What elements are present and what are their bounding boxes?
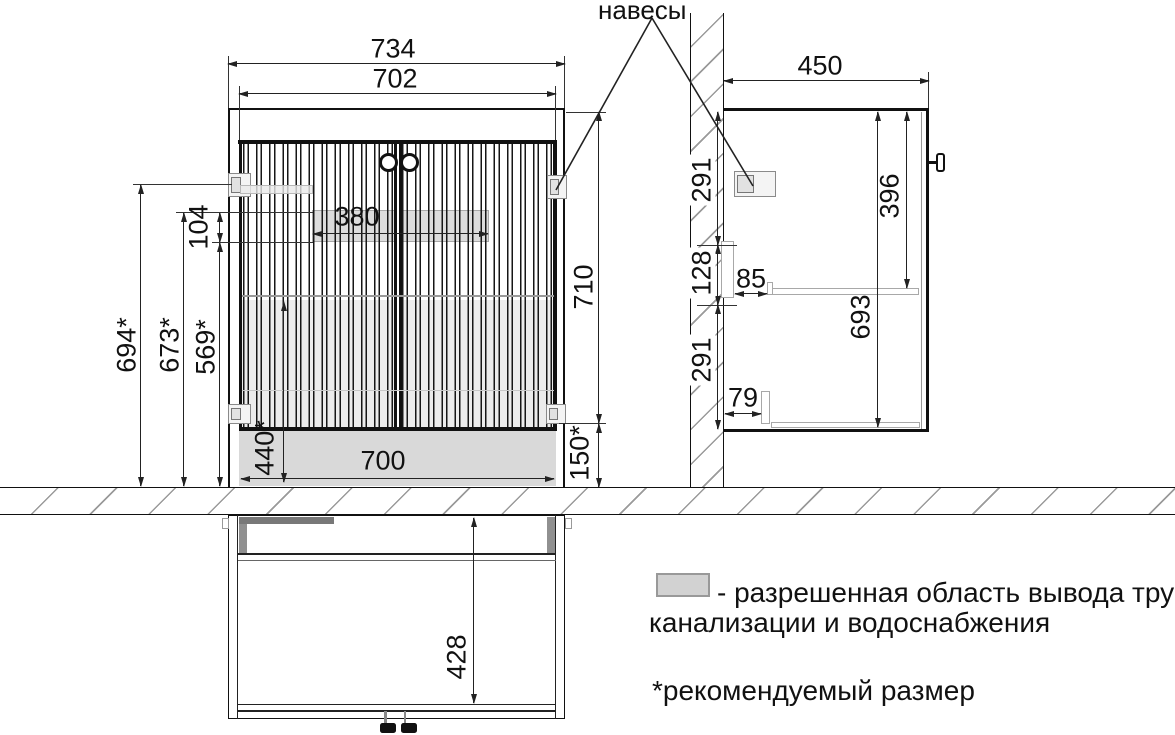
dim-label-440: 440* bbox=[252, 420, 279, 476]
hinge-side-view bbox=[734, 171, 776, 197]
dimension-line-104 bbox=[219, 213, 220, 242]
dim-label-702: 702 bbox=[372, 66, 417, 93]
hinge-bottom-left bbox=[228, 404, 251, 424]
dim-label-734: 734 bbox=[370, 36, 415, 63]
dim-label-693: 693 bbox=[848, 294, 875, 339]
wall-pipe-outlet-zone bbox=[721, 241, 734, 298]
side-bottom-panel bbox=[771, 422, 920, 428]
dim-label-673: 673* bbox=[157, 317, 184, 373]
extension-line bbox=[133, 184, 232, 185]
door-knob-left bbox=[379, 153, 398, 172]
cabinet-top-edge bbox=[228, 108, 565, 110]
dimension-line-150 bbox=[598, 424, 599, 487]
dimension-line-291-top bbox=[717, 112, 718, 245]
plan-side-inner-right bbox=[555, 515, 556, 719]
door-knob-right bbox=[400, 153, 419, 172]
dimension-line-291-bottom bbox=[717, 305, 718, 429]
dimension-line-396 bbox=[906, 112, 907, 288]
dim-label-710: 710 bbox=[571, 264, 598, 309]
dim-label-104: 104 bbox=[186, 204, 213, 249]
floor-hatch bbox=[0, 487, 1175, 515]
plan-knob-cap-right bbox=[401, 723, 418, 733]
plan-knob-stem bbox=[404, 711, 407, 723]
dimension-line-128 bbox=[717, 245, 718, 305]
cabinet-technical-drawing: 734 702 710 150* 694* 673* 569* 104 380 … bbox=[0, 0, 1175, 735]
plan-line bbox=[238, 560, 556, 561]
plan-back-rail bbox=[239, 517, 334, 525]
side-knob-stem bbox=[929, 161, 936, 164]
dim-label-380: 380 bbox=[334, 204, 379, 231]
legend-line1: - разрешенная область вывода труб bbox=[717, 577, 1175, 609]
hinge-top-right bbox=[547, 175, 567, 199]
side-bottom-edge bbox=[724, 429, 929, 432]
dimension-line-700 bbox=[241, 478, 554, 479]
hinge-bottom-right bbox=[546, 404, 566, 424]
dim-label-291-bottom: 291 bbox=[689, 334, 716, 385]
cabinet-side-left bbox=[228, 108, 230, 487]
dim-label-150: 150* bbox=[567, 425, 594, 481]
dimension-line-693 bbox=[877, 112, 878, 427]
side-bottom-bracket bbox=[761, 391, 770, 424]
dim-label-700: 700 bbox=[360, 448, 405, 475]
door-right-fluting bbox=[402, 144, 552, 428]
plan-knob-cap-left bbox=[380, 723, 397, 733]
hinges-label: навесы bbox=[598, 0, 687, 26]
door-center-divider bbox=[394, 144, 402, 428]
side-door-edge bbox=[926, 108, 930, 432]
plan-line bbox=[238, 704, 556, 705]
side-knob bbox=[936, 153, 945, 172]
plan-wall-bracket-right bbox=[565, 518, 572, 529]
dim-label-291-top: 291 bbox=[689, 154, 716, 205]
legend-line2: канализации и водоснабжения bbox=[649, 607, 1050, 639]
dim-label-694: 694* bbox=[114, 317, 141, 373]
dimension-line-79 bbox=[725, 413, 761, 414]
extension-line bbox=[212, 242, 313, 243]
dimension-line-428 bbox=[473, 518, 474, 703]
dim-label-569: 569* bbox=[193, 319, 220, 375]
drawer-slide-rail bbox=[240, 185, 313, 194]
plan-outline bbox=[228, 515, 565, 719]
side-top-edge bbox=[724, 108, 929, 111]
dim-label-128: 128 bbox=[689, 247, 716, 298]
legend-zone-swatch bbox=[656, 573, 710, 597]
plan-line bbox=[238, 710, 556, 712]
dimension-line-380 bbox=[313, 233, 488, 234]
dim-label-450: 450 bbox=[797, 53, 842, 80]
dim-label-396: 396 bbox=[877, 173, 904, 218]
door-bottom-edge bbox=[239, 427, 557, 431]
plan-knob-stem bbox=[384, 711, 387, 723]
plan-wall-bracket-left bbox=[222, 518, 229, 529]
plan-line bbox=[238, 553, 556, 555]
shelf-line bbox=[242, 295, 554, 297]
shelf-line-lower bbox=[242, 390, 554, 391]
dim-label-85: 85 bbox=[736, 266, 766, 293]
legend-footnote: *рекомендуемый размер bbox=[652, 675, 975, 707]
side-door-inner-line bbox=[921, 112, 922, 430]
dim-label-79: 79 bbox=[728, 385, 758, 412]
dim-label-428: 428 bbox=[444, 634, 471, 679]
dimension-line-440 bbox=[283, 302, 284, 482]
plan-corner-block-right bbox=[547, 517, 555, 554]
